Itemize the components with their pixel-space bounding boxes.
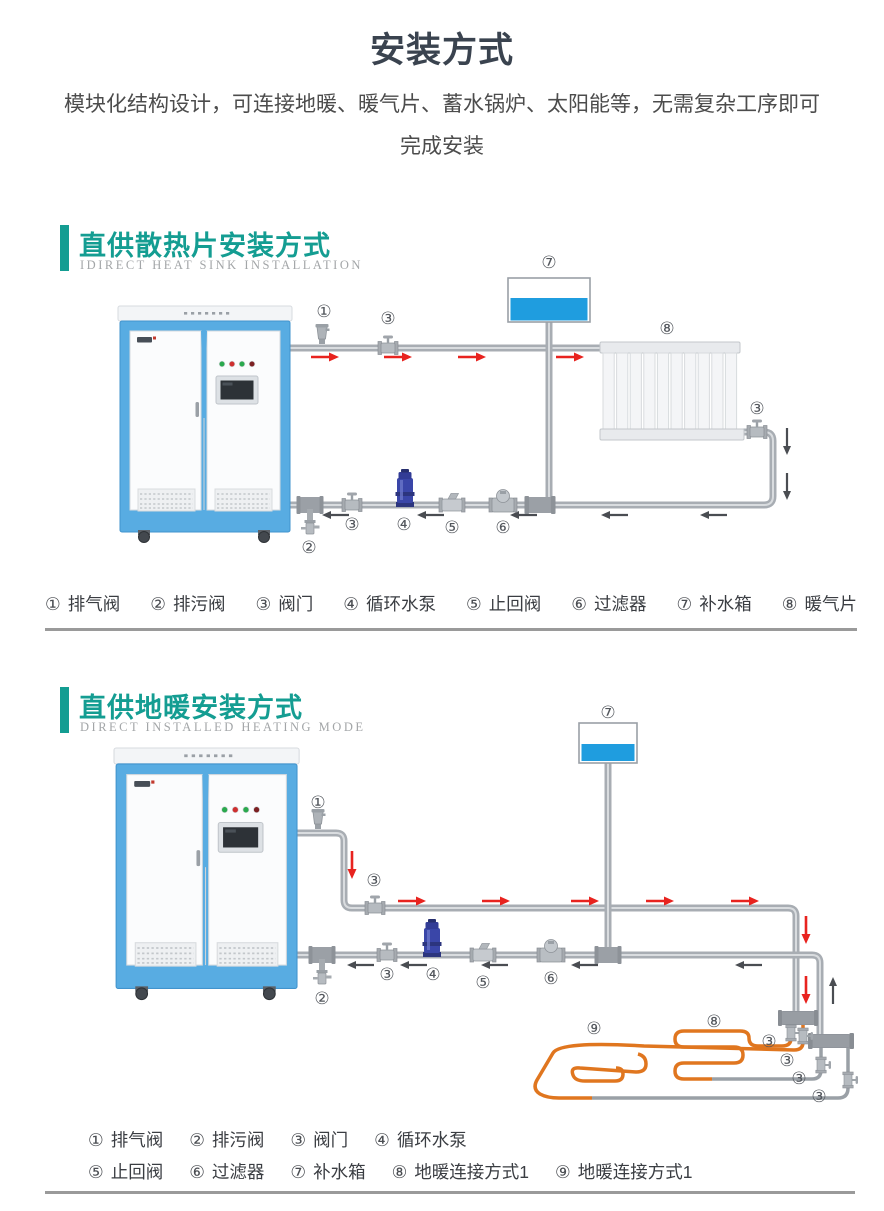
legend-item: ⑦补水箱	[290, 1159, 365, 1184]
legend-item: ②排污阀	[150, 591, 225, 616]
legend-num: ⑦	[290, 1162, 306, 1182]
legend-item: ⑦补水箱	[677, 591, 752, 616]
radiator	[600, 342, 744, 440]
legend-num: ⑤	[466, 594, 482, 614]
page-subtitle-line2: 完成安装	[0, 130, 884, 160]
legend-num: ④	[374, 1130, 390, 1150]
legend-label: 止回阀	[489, 594, 542, 614]
floor-heating-diagram: ① ③ ⑦ ② ③ ④ ⑤ ⑥ ⑧ ⑨ ③ ③ ③ ③	[0, 690, 884, 1120]
bottom-divider	[45, 1191, 855, 1194]
legend-label: 排污阀	[212, 1130, 265, 1150]
label-tank: ⑦	[541, 253, 556, 273]
label-valve-right: ③	[749, 399, 764, 419]
legend-item: ⑧地暖连接方式1	[392, 1159, 529, 1184]
legend-label: 暖气片	[804, 594, 857, 614]
filter	[489, 490, 517, 513]
label-blowdown: ②	[314, 989, 329, 1009]
legend-label: 补水箱	[313, 1162, 366, 1182]
legend-item: ①排气阀	[88, 1127, 163, 1152]
legend-num: ③	[290, 1130, 306, 1150]
legend-num: ⑤	[88, 1162, 104, 1182]
legend-num: ④	[343, 594, 359, 614]
legend-item: ②排污阀	[189, 1127, 264, 1152]
label-check: ⑤	[444, 518, 459, 538]
diagram2-supply-arrows	[348, 851, 811, 1004]
tee-fitting	[595, 946, 622, 964]
return-manifold	[808, 1033, 854, 1049]
legend-label: 循环水泵	[366, 594, 436, 614]
air-release-valve	[316, 324, 330, 344]
legend-num: ⑦	[677, 594, 693, 614]
label-airvalve: ①	[310, 793, 325, 813]
label-coil8: ⑧	[706, 1012, 721, 1032]
circulation-pump	[396, 469, 415, 507]
legend-item: ⑥过滤器	[571, 591, 646, 616]
legend-item: ⑥过滤器	[189, 1159, 264, 1184]
page-subtitle-line1: 模块化结构设计，可连接地暖、暖气片、蓄水锅炉、太阳能等，无需复杂工序即可	[0, 88, 884, 118]
legend-item: ⑤止回阀	[88, 1159, 163, 1184]
label-valve-bottom: ③	[379, 965, 394, 985]
label-filter: ⑥	[495, 518, 510, 538]
legend-num: ①	[45, 594, 61, 614]
check-valve	[439, 494, 465, 513]
label-filter: ⑥	[543, 969, 558, 989]
legend-label: 排气阀	[111, 1130, 164, 1150]
legend-item: ④循环水泵	[343, 591, 436, 616]
label-coil-valve3: ③	[791, 1069, 806, 1089]
legend-label: 补水箱	[699, 594, 752, 614]
legend-floor-heating-row1: ①排气阀 ②排污阀 ③阀门 ④循环水泵	[88, 1127, 467, 1152]
legend-label: 循环水泵	[397, 1130, 467, 1150]
label-airvalve: ①	[316, 302, 331, 322]
coil-valve	[843, 1072, 858, 1088]
page: { "page": { "title": "安装方式", "subtitle_l…	[0, 0, 884, 1211]
water-tank	[579, 723, 637, 763]
legend-item: ①排气阀	[45, 591, 120, 616]
legend-item: ⑤止回阀	[466, 591, 541, 616]
heat-sink-diagram: ① ③ ⑦ ⑧ ③ ② ③ ④ ⑤ ⑥	[0, 240, 884, 570]
label-coil-valve2: ③	[779, 1051, 794, 1071]
label-check: ⑤	[475, 973, 490, 993]
filter	[537, 940, 565, 963]
supply-manifold	[778, 1010, 818, 1026]
legend-label: 排污阀	[173, 594, 226, 614]
legend-num: ⑥	[571, 594, 587, 614]
label-tank: ⑦	[600, 703, 615, 723]
page-title: 安装方式	[0, 22, 884, 73]
circulation-pump	[423, 919, 442, 957]
label-coil-valve4: ③	[811, 1087, 826, 1107]
legend-num: ③	[256, 594, 272, 614]
legend-label: 地暖连接方式1	[578, 1162, 693, 1182]
label-radiator: ⑧	[659, 319, 674, 339]
diagram2-return-arrows	[347, 961, 837, 1004]
label-valve-top: ③	[380, 309, 395, 329]
water-tank	[508, 278, 590, 322]
tee-fitting	[524, 496, 555, 514]
legend-num: ⑧	[392, 1162, 408, 1182]
legend-floor-heating-row2: ⑤止回阀 ⑥过滤器 ⑦补水箱 ⑧地暖连接方式1 ⑨地暖连接方式1	[88, 1159, 692, 1184]
legend-num: ②	[189, 1130, 205, 1150]
legend-label: 阀门	[278, 594, 313, 614]
boiler-unit	[114, 748, 299, 1000]
gate-valve	[378, 336, 398, 355]
boiler-unit	[118, 306, 292, 543]
legend-num: ⑧	[782, 594, 798, 614]
legend-heat-sink: ①排气阀 ②排污阀 ③阀门 ④循环水泵 ⑤止回阀 ⑥过滤器 ⑦补水箱 ⑧暖气片	[45, 591, 857, 616]
legend-label: 排气阀	[68, 594, 121, 614]
coil-valve	[816, 1057, 831, 1073]
label-blowdown: ②	[301, 538, 316, 558]
gate-valve	[365, 896, 385, 915]
legend-num: ⑥	[189, 1162, 205, 1182]
legend-item: ③阀门	[290, 1127, 348, 1152]
section-divider	[45, 628, 857, 631]
legend-label: 阀门	[313, 1130, 348, 1150]
legend-num: ①	[88, 1130, 104, 1150]
legend-num: ②	[150, 594, 166, 614]
label-pump: ④	[425, 965, 440, 985]
gate-valve	[747, 420, 767, 439]
label-valve-bottom: ③	[344, 515, 359, 535]
legend-num: ⑨	[555, 1162, 571, 1182]
legend-label: 过滤器	[594, 594, 647, 614]
gate-valve	[377, 943, 397, 962]
label-pump: ④	[396, 515, 411, 535]
check-valve	[470, 944, 496, 963]
legend-item: ⑧暖气片	[782, 591, 857, 616]
legend-item: ③阀门	[256, 591, 314, 616]
legend-label: 地暖连接方式1	[414, 1162, 529, 1182]
label-coil9: ⑨	[586, 1019, 601, 1039]
label-valve-top: ③	[366, 871, 381, 891]
legend-label: 过滤器	[212, 1162, 265, 1182]
legend-item: ④循环水泵	[374, 1127, 467, 1152]
gate-valve	[342, 493, 362, 512]
label-coil-valve1: ③	[761, 1032, 776, 1052]
legend-item: ⑨地暖连接方式1	[555, 1159, 692, 1184]
legend-label: 止回阀	[111, 1162, 164, 1182]
diagram1-supply-arrows	[311, 353, 584, 362]
